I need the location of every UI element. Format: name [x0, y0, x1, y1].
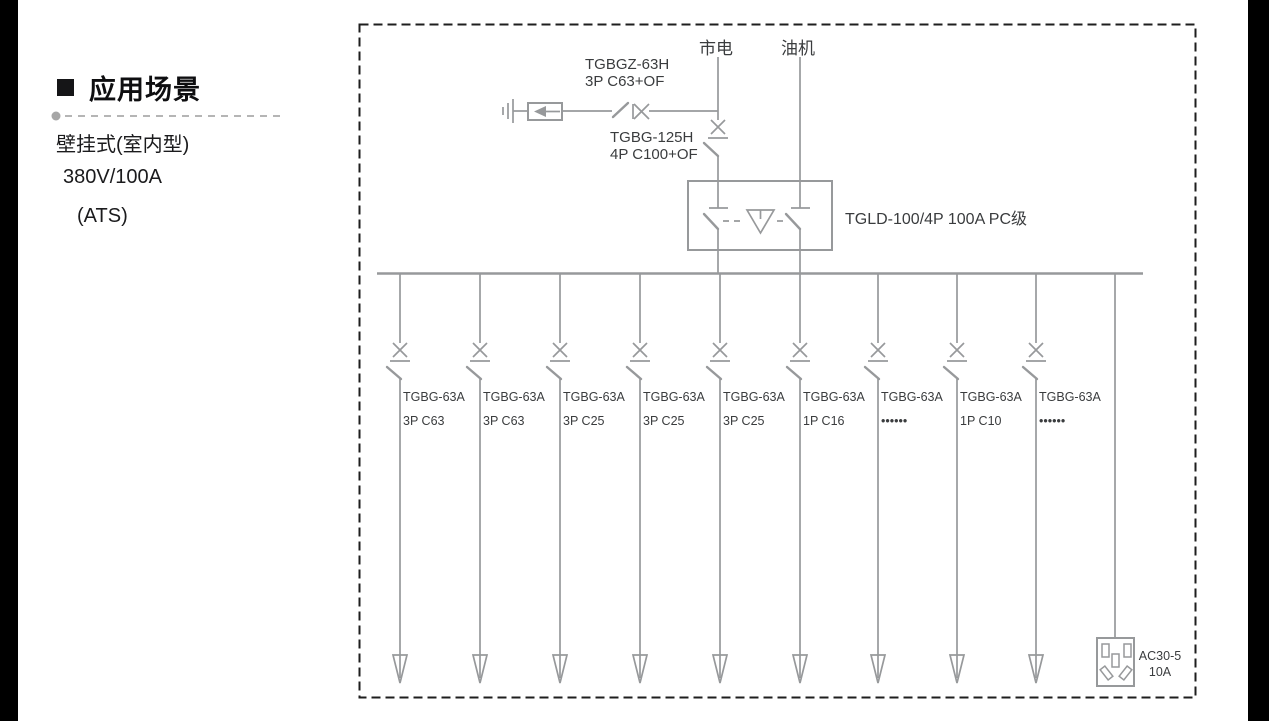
- spd-breaker-model: TGBGZ-63H: [585, 56, 669, 73]
- generator-source-label: 油机: [776, 34, 820, 59]
- branch-feeder-2: [467, 274, 490, 683]
- mains-feeder: [704, 57, 728, 208]
- branch-label-6: TGBG-63A 1P C16: [803, 385, 877, 433]
- branch-label-5: TGBG-63A 3P C25: [723, 385, 797, 433]
- branch-4-spec: 3P C25: [643, 409, 717, 433]
- branch-feeders: [387, 274, 1046, 683]
- branch-4-model: TGBG-63A: [643, 385, 717, 409]
- ground-icon: [503, 99, 513, 123]
- branch-label-2: TGBG-63A 3P C63: [483, 385, 557, 433]
- branch-label-8: TGBG-63A 1P C10: [960, 385, 1034, 433]
- socket-model: AC30-5: [1136, 648, 1184, 664]
- branch-1-spec: 3P C63: [403, 409, 477, 433]
- branch-5-spec: 3P C25: [723, 409, 797, 433]
- branch-7-model: TGBG-63A: [881, 385, 955, 409]
- main-breaker-spec: 4P C100+OF: [610, 146, 698, 163]
- socket-icon: [1097, 638, 1134, 686]
- spd-breaker-spec: 3P C63+OF: [585, 73, 669, 90]
- spd-branch: [503, 99, 718, 123]
- socket-label: AC30-5 10A: [1136, 648, 1184, 680]
- branch-2-model: TGBG-63A: [483, 385, 557, 409]
- ats-interlock-icon: [723, 210, 787, 233]
- branch-feeder-3: [547, 274, 570, 683]
- branch-feeder-7: [865, 274, 888, 683]
- branch-feeder-6: [787, 274, 810, 683]
- branch-8-model: TGBG-63A: [960, 385, 1034, 409]
- title-divider: [52, 112, 284, 121]
- branch-feeder-9: [1023, 274, 1046, 683]
- branch-6-model: TGBG-63A: [803, 385, 877, 409]
- branch-6-spec: 1P C16: [803, 409, 877, 433]
- branch-9-model: TGBG-63A: [1039, 385, 1113, 409]
- spd-breaker-label: TGBGZ-63H 3P C63+OF: [585, 56, 669, 90]
- ats-label: TGLD-100/4P 100A PC级: [845, 205, 1027, 229]
- branch-feeder-4: [627, 274, 650, 683]
- branch-label-7: TGBG-63A ••••••: [881, 385, 955, 433]
- spd-arrow-icon: [534, 106, 560, 117]
- branch-7-spec: ••••••: [881, 409, 955, 433]
- spd-breaker-symbol: [613, 103, 649, 119]
- mains-source-label: 市电: [694, 34, 738, 59]
- main-breaker-model: TGBG-125H: [610, 129, 698, 146]
- main-breaker-symbol: [704, 120, 728, 156]
- circuit-diagram: [0, 0, 1269, 721]
- divider-dot: [52, 112, 61, 121]
- branch-5-model: TGBG-63A: [723, 385, 797, 409]
- branch-1-model: TGBG-63A: [403, 385, 477, 409]
- branch-feeder-8: [944, 274, 967, 683]
- branch-9-spec: ••••••: [1039, 409, 1113, 433]
- branch-2-spec: 3P C63: [483, 409, 557, 433]
- branch-label-3: TGBG-63A 3P C25: [563, 385, 637, 433]
- main-breaker-label: TGBG-125H 4P C100+OF: [610, 129, 698, 163]
- branch-8-spec: 1P C10: [960, 409, 1034, 433]
- branch-feeder-1: [387, 274, 410, 683]
- branch-3-model: TGBG-63A: [563, 385, 637, 409]
- ats-switch: [688, 181, 832, 274]
- socket-feeder: [1097, 274, 1134, 686]
- branch-feeder-5: [707, 274, 730, 683]
- branch-label-1: TGBG-63A 3P C63: [403, 385, 477, 433]
- branch-label-4: TGBG-63A 3P C25: [643, 385, 717, 433]
- branch-label-9: TGBG-63A ••••••: [1039, 385, 1113, 433]
- branch-3-spec: 3P C25: [563, 409, 637, 433]
- socket-rating: 10A: [1136, 664, 1184, 680]
